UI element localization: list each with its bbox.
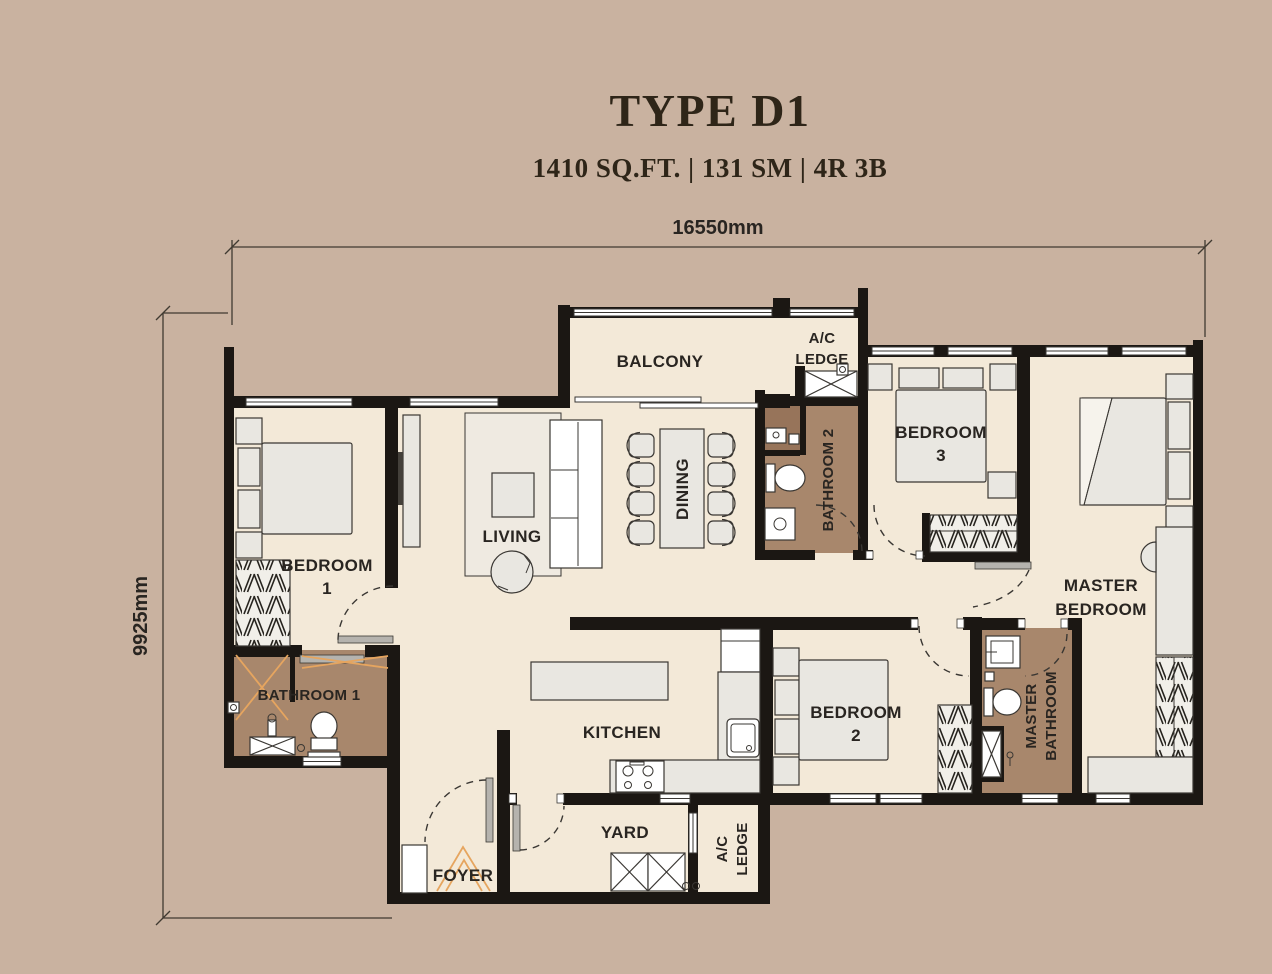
shower-drain [228,702,239,713]
entrance-door [486,778,493,842]
basin [765,508,795,540]
sink [766,428,786,443]
bed [262,443,352,534]
label-bedroom2-1: BEDROOM [810,703,902,722]
desk [1156,527,1193,655]
label-bedroom1-2: 1 [322,579,332,598]
label-master-bathroom-1: MASTER [1023,683,1040,748]
sofa [550,420,602,568]
yard-door [513,805,520,851]
label-yard: YARD [601,823,649,842]
label-master-bathroom-2: BATHROOM [1043,671,1060,761]
tv [398,452,403,505]
label-ac-ledge-top-2: LEDGE [795,351,848,368]
label-living: LIVING [482,527,541,546]
label-master-bedroom-1: MASTER [1064,576,1138,595]
label-bedroom2-2: 2 [851,726,861,745]
floor-drain [985,672,994,681]
label-foyer: FOYER [433,866,494,885]
coffee-table [492,473,534,517]
dresser [1088,757,1193,793]
stove [616,761,664,792]
toilet [775,465,805,491]
label-bathroom1: BATHROOM 1 [258,687,361,704]
label-bedroom3-2: 3 [936,446,946,465]
label-master-bedroom-2: BEDROOM [1055,600,1147,619]
page-subtitle: 1410 SQ.FT. | 131 SM | 4R 3B [533,153,888,183]
foyer-cabinet [402,845,427,893]
label-bathroom2: BATHROOM 2 [820,429,837,532]
width-dimension: 16550mm [672,217,763,239]
side-table [988,472,1016,498]
toilet [311,712,337,740]
floor-plan-svg: TYPE D1 1410 SQ.FT. | 131 SM | 4R 3B 165… [0,0,1272,974]
balcony-sliding-door [575,397,701,402]
floor-drain [789,434,799,444]
toilet-tank [984,688,993,716]
page-title: TYPE D1 [610,85,811,136]
label-kitchen: KITCHEN [583,723,661,742]
label-ac-ledge-bottom-1: A/C [714,836,731,863]
label-ac-ledge-top-1: A/C [809,330,836,347]
label-bedroom3-1: BEDROOM [895,423,987,442]
label-bedroom1-1: BEDROOM [281,556,373,575]
bedroom1-door [338,636,393,643]
kitchen-island [531,662,668,700]
floor-plan-page: TYPE D1 1410 SQ.FT. | 131 SM | 4R 3B 165… [0,0,1272,974]
master-area-door [975,562,1031,569]
label-balcony: BALCONY [617,352,704,371]
wardrobe [938,705,972,793]
fridge [721,629,760,672]
wardrobe [930,515,1017,552]
toilet [993,689,1021,715]
toilet-tank [766,464,775,492]
height-dimension: 9925mm [130,576,152,656]
label-dining: DINING [673,458,692,520]
label-ac-ledge-bottom-2: LEDGE [734,822,751,875]
tv-console [403,415,420,547]
